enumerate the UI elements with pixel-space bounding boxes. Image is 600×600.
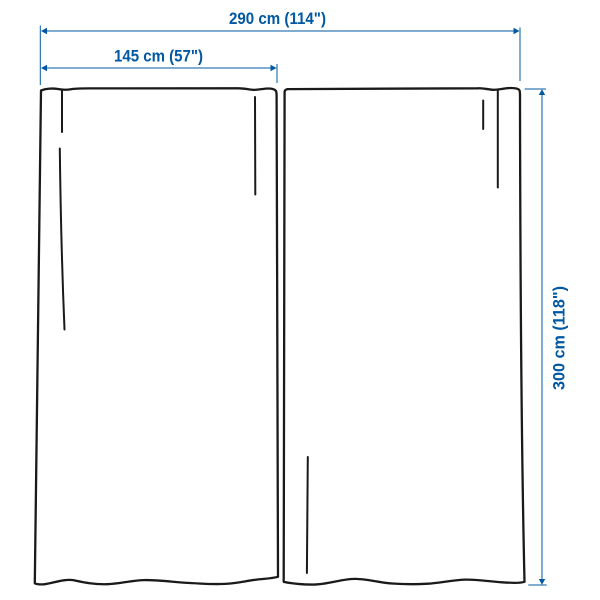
svg-text:290 cm (114"): 290 cm (114") bbox=[229, 9, 326, 28]
svg-text:300 cm (118"): 300 cm (118") bbox=[550, 286, 569, 390]
svg-text:145 cm (57"): 145 cm (57") bbox=[114, 47, 203, 66]
